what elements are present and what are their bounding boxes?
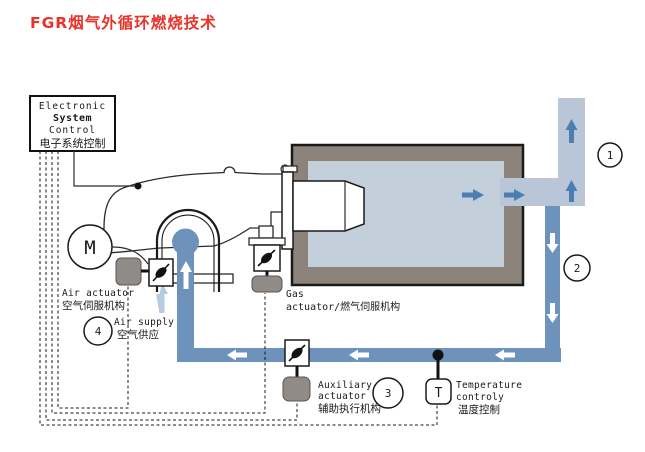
control-wire-dot [135, 183, 142, 190]
fgr-diagram: FGR烟气外循环燃烧技术 M [0, 0, 645, 452]
air-supply-label-en: Air supply [114, 317, 174, 328]
air-actuator-label-en: Air actuator [62, 288, 134, 299]
aux-label-line1: Auxiliary [318, 380, 372, 391]
diagram-page: FGR烟气外循环燃烧技术 M [0, 0, 645, 452]
marker-1-number: 1 [607, 149, 614, 162]
flange-top-plate [283, 166, 297, 172]
temp-sensor-letter: T [435, 386, 443, 401]
gas-label-en: Gas [286, 289, 304, 300]
riser-cap [172, 229, 199, 256]
air-actuator-box [116, 258, 141, 285]
air-actuator-label-zh: 空气伺服机构 [62, 299, 125, 312]
gas-flange-plate [249, 238, 285, 245]
temp-label-zh: 温度控制 [458, 403, 500, 416]
marker-3-number: 3 [385, 387, 392, 400]
control-box-line4: 电子系统控制 [40, 136, 106, 150]
marker-4-number: 4 [95, 325, 102, 338]
page-title: FGR烟气外循环燃烧技术 [30, 13, 217, 32]
burner-nozzle [293, 181, 364, 231]
control-wire-burner [74, 151, 135, 186]
gas-actuator-label: actuator/燃气伺服机构 [286, 300, 400, 313]
marker-2-number: 2 [574, 262, 581, 275]
control-box-line1: Electronic [39, 101, 106, 112]
aux-label-line2: actuator [318, 391, 366, 402]
control-box-line2: System [53, 113, 92, 124]
control-box-line3: Control [49, 125, 96, 136]
air-supply-label-zh: 空气供应 [117, 328, 159, 341]
aux-label-zh: 辅助执行机构 [318, 402, 381, 415]
aux-actuator-box [283, 377, 310, 401]
gas-actuator-box [252, 276, 282, 292]
motor-label: M [84, 237, 95, 259]
temp-label-line1: Temperature [456, 380, 522, 391]
recirc-riser [177, 240, 194, 350]
temp-label-line2: controly [456, 392, 504, 403]
gas-pipe-stub [259, 226, 273, 238]
recirc-pipe-down [545, 206, 560, 362]
